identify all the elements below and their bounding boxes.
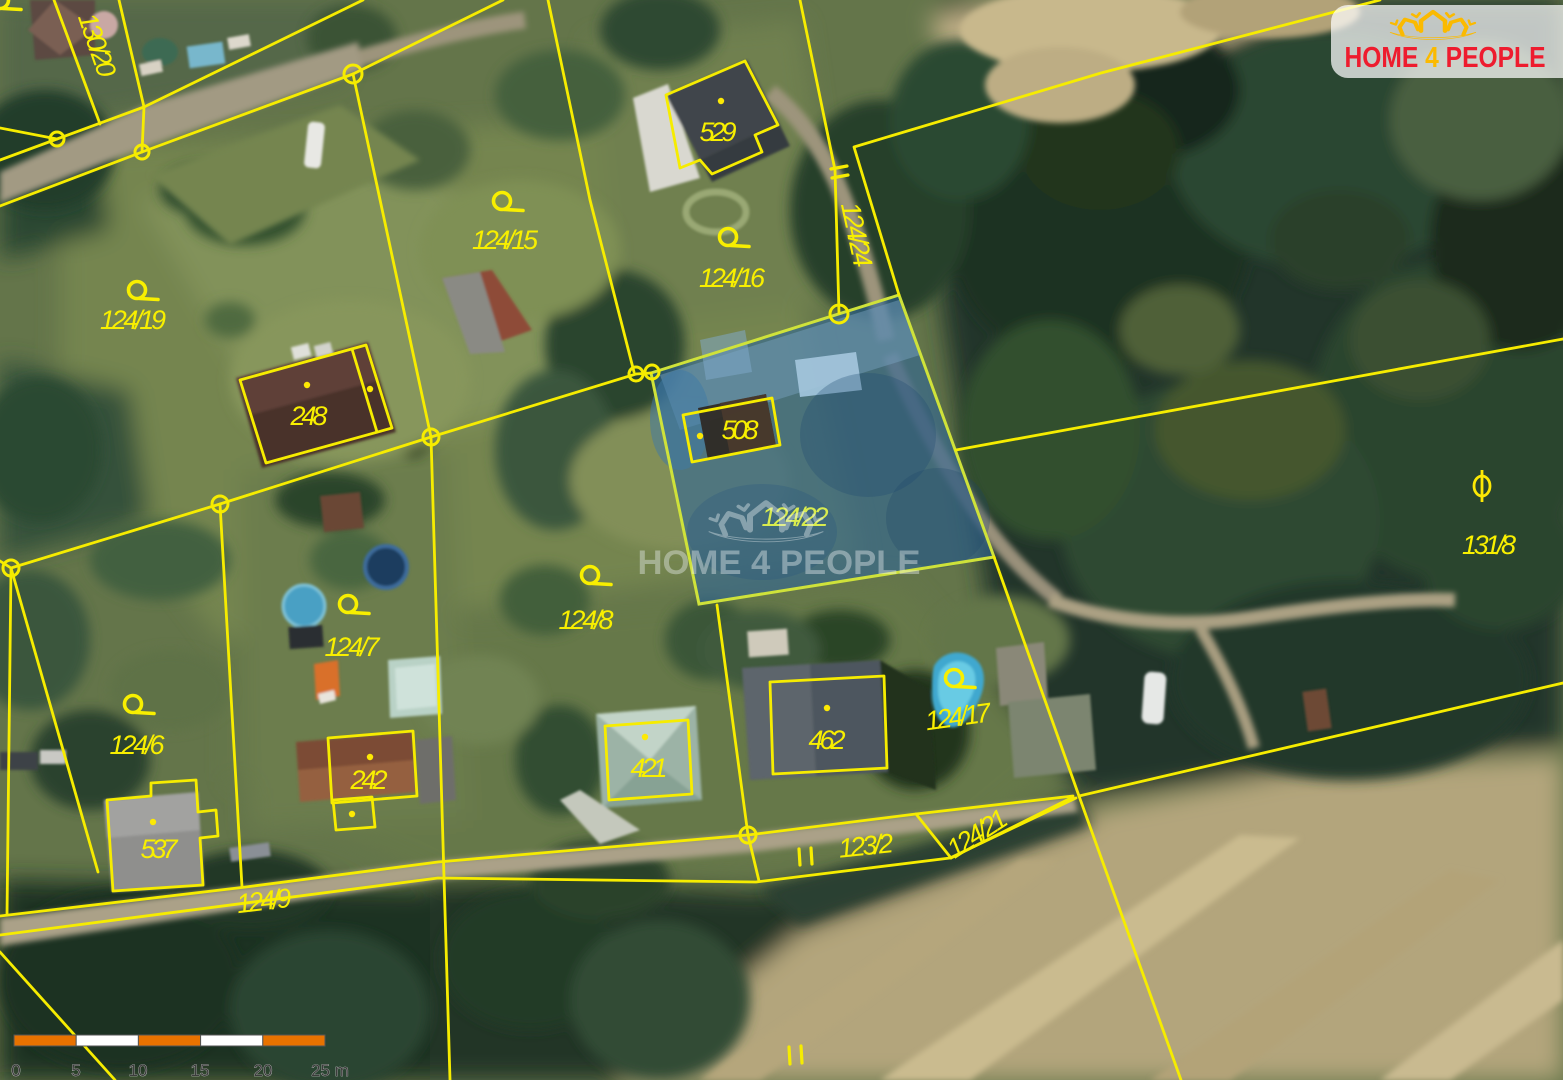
svg-text:124/6: 124/6 [110, 730, 166, 760]
svg-text:0: 0 [11, 1061, 20, 1080]
svg-text:421: 421 [631, 753, 668, 783]
svg-text:124/16: 124/16 [699, 263, 766, 293]
svg-text:529: 529 [700, 117, 737, 147]
svg-text:124/8: 124/8 [559, 605, 614, 635]
svg-text:124/7: 124/7 [325, 632, 381, 662]
svg-text:25 m: 25 m [311, 1061, 349, 1080]
svg-text:537: 537 [141, 834, 179, 864]
svg-text:124/19: 124/19 [100, 305, 166, 335]
svg-text:20: 20 [254, 1061, 273, 1080]
svg-text:242: 242 [350, 765, 388, 795]
svg-text:248: 248 [290, 401, 328, 431]
svg-text:124/15: 124/15 [472, 225, 539, 255]
svg-text:15: 15 [191, 1061, 210, 1080]
svg-text:10: 10 [129, 1061, 148, 1080]
svg-text:5: 5 [71, 1061, 80, 1080]
svg-text:HOME 4 PEOPLE: HOME 4 PEOPLE [638, 544, 921, 582]
svg-text:123/2: 123/2 [837, 828, 895, 864]
svg-text:462: 462 [809, 725, 846, 755]
svg-text:HOME 4 PEOPLE: HOME 4 PEOPLE [1345, 42, 1546, 74]
svg-text:131/8: 131/8 [1462, 530, 1516, 560]
svg-text:508: 508 [722, 415, 759, 445]
